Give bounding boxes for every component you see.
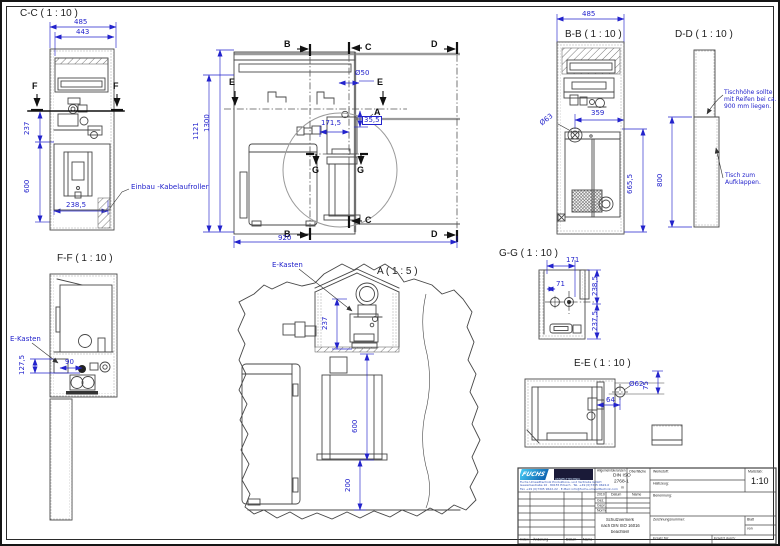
view-cc-drawing bbox=[10, 16, 200, 241]
cc-dim-237: 237 bbox=[24, 122, 31, 135]
a-dim-600: 600 bbox=[352, 420, 359, 433]
footer-name-label: Name bbox=[583, 538, 592, 542]
dd-dim-800: 800 bbox=[657, 174, 664, 187]
drawing-number-label: Zeichnungsnummer: bbox=[653, 518, 685, 522]
main-dim-35-5: 35,5 bbox=[362, 116, 382, 125]
protection-note-line-1: Schutzvermerk bbox=[606, 518, 634, 522]
main-dim-1300: 1300 bbox=[204, 114, 211, 132]
cc-marker-f-right: F bbox=[113, 82, 119, 91]
cc-dim-600: 600 bbox=[24, 180, 31, 193]
main-marker-g-right: G bbox=[357, 166, 364, 175]
main-marker-d-top: D bbox=[431, 40, 438, 49]
view-dd-drawing bbox=[657, 12, 780, 242]
gg-dim-237-5: 237,5 bbox=[592, 311, 599, 331]
main-dim-171-5: 171,5 bbox=[321, 120, 341, 127]
view-ff-drawing bbox=[7, 247, 202, 537]
ee-dim-o62: Ø62 bbox=[629, 381, 643, 388]
sheet-label: Blatt bbox=[747, 518, 754, 522]
ff-dim-90: 90 bbox=[65, 359, 74, 366]
gg-dim-71: 71 bbox=[556, 281, 565, 288]
dd-note-fold: Tisch zum Aufklappen. bbox=[725, 172, 767, 186]
ee-dim-75: 75 bbox=[643, 381, 650, 390]
bb-dim-359: 359 bbox=[591, 110, 604, 117]
designation-label: Benennung: bbox=[653, 494, 672, 498]
view-a-drawing bbox=[232, 257, 492, 527]
dd-note-height: Tischhöhe sollte mit Reifen bei ca. 900 … bbox=[724, 89, 780, 111]
company-logo-sub: UMWELTTECHNIK bbox=[554, 477, 580, 480]
main-marker-b-top: B bbox=[284, 40, 291, 49]
footer-index-label: Index bbox=[520, 538, 529, 542]
a-dim-237: 237 bbox=[322, 317, 329, 330]
company-logo: FUCHS UMWELTTECHNIK bbox=[520, 469, 593, 480]
view-ee-drawing bbox=[517, 352, 692, 457]
a-label-ekasten: E-Kasten bbox=[272, 262, 303, 269]
header-name: Name bbox=[632, 493, 641, 497]
ff-dim-127-5: 127,5 bbox=[19, 355, 26, 375]
cc-dim-443: 443 bbox=[76, 29, 89, 36]
footer-date-label: Datum bbox=[566, 538, 576, 542]
company-address: Fuchs Umwelttechnik Produktions- und Ver… bbox=[520, 481, 753, 491]
bb-dim-485: 485 bbox=[582, 11, 595, 18]
tolerance-standard-1: DIN ISO bbox=[613, 473, 631, 478]
protection-note-line-2: nach DIN ISO 16016 bbox=[601, 524, 640, 528]
cc-dim-485: 485 bbox=[74, 19, 87, 26]
ee-dim-64: 64 bbox=[606, 397, 615, 404]
protection-note-line-3: beachten! bbox=[611, 530, 629, 534]
a-dim-200: 200 bbox=[345, 479, 352, 492]
tolerance-label: Allgemeintoleranzen bbox=[597, 469, 626, 472]
company-line-2: Gewerbestraße 10 · 89155 Erbach · Tel. +… bbox=[520, 484, 618, 485]
replacement-for-label: Ersatz für: bbox=[653, 537, 669, 541]
cc-dim-238-5: 238,5 bbox=[66, 202, 86, 209]
surface-label: Oberfläche bbox=[629, 470, 646, 474]
company-logo-text: FUCHS bbox=[520, 469, 549, 480]
main-dim-o50: Ø50 bbox=[355, 70, 369, 77]
header-revision: 2010 bbox=[597, 493, 605, 497]
main-dim-920: 920 bbox=[278, 235, 291, 242]
company-line-1: Fuchs Umwelttechnik Produktions- und Ver… bbox=[520, 481, 618, 482]
header-date: Datum bbox=[611, 493, 621, 497]
row-drawn-label: Gez. bbox=[597, 499, 604, 503]
view-main-drawing bbox=[197, 32, 472, 252]
main-marker-g-left: G bbox=[312, 166, 319, 175]
scale-value: 1:10 bbox=[751, 477, 769, 486]
bb-dim-665-5: 665,5 bbox=[627, 174, 634, 194]
company-logo-sub-block: UMWELTTECHNIK bbox=[554, 469, 593, 480]
main-marker-e-right: E bbox=[377, 78, 383, 87]
drawing-sheet: C-C ( 1 : 10 ) bbox=[0, 0, 780, 546]
gg-dim-238-5: 238,5 bbox=[592, 276, 599, 296]
semifinished-label: Halbzeug: bbox=[653, 482, 669, 486]
main-marker-c-bottom: C bbox=[365, 216, 372, 225]
footer-change-label: Änderung bbox=[533, 538, 548, 542]
tolerance-class: m bbox=[621, 486, 624, 490]
replaced-by-label: Ersetzt durch: bbox=[714, 537, 736, 541]
gg-dim-171: 171 bbox=[566, 257, 579, 264]
view-bb-drawing bbox=[542, 12, 662, 242]
main-dim-1121: 1121 bbox=[193, 122, 200, 140]
ff-label-ekasten: E-Kasten bbox=[10, 336, 41, 343]
main-marker-d-bottom: D bbox=[431, 230, 438, 239]
main-marker-e-left: E bbox=[229, 78, 235, 87]
tolerance-standard-2: 2768-1 bbox=[614, 479, 629, 484]
cc-marker-f-left: F bbox=[32, 82, 38, 91]
scale-label: Maßstab: bbox=[748, 470, 763, 474]
company-line-3: Fax +49 (0)7305 9622-22 · E-Mail: info@f… bbox=[520, 488, 618, 489]
view-gg-drawing bbox=[492, 247, 637, 352]
material-label: Werkstoff: bbox=[653, 470, 669, 474]
row-checked-label: Gepr. bbox=[597, 504, 606, 508]
main-marker-c-top: C bbox=[365, 43, 372, 52]
row-norm-label: Norm bbox=[597, 509, 606, 513]
sheet-of-label: von bbox=[747, 527, 753, 531]
